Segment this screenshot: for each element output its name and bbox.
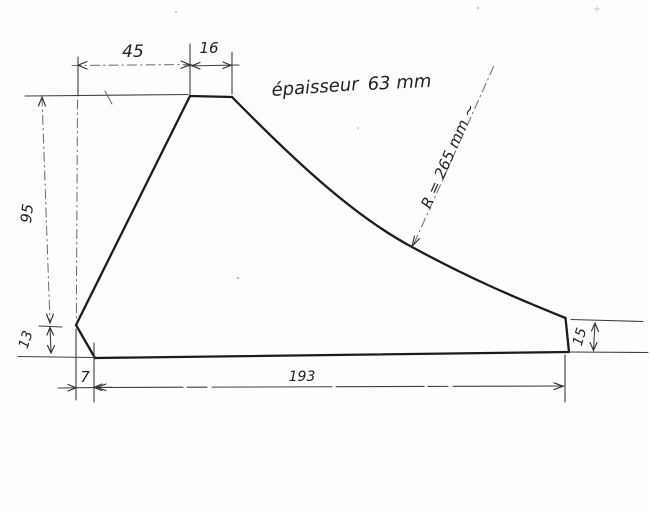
- thickness-note: épaisseur 63 mm: [271, 71, 432, 101]
- outline-right-edge: [566, 318, 570, 352]
- outline-bottom-edge: [95, 352, 569, 358]
- speck-dot: [477, 7, 479, 9]
- thickness-note-label: épaisseur: [271, 74, 361, 101]
- arrowhead-radius-leader: [412, 236, 420, 247]
- extension-lines: [18, 44, 648, 402]
- outline-left-slant-edge: [76, 96, 190, 325]
- technical-drawing-canvas: 45 16 95 13 7 193 15 R = 265 mm ~ épaiss…: [0, 0, 650, 510]
- scan-specks: [175, 6, 600, 279]
- ext-line-lower-left-level: [18, 357, 93, 358]
- dim-7-label: 7: [80, 368, 90, 386]
- dim-16-label: 16: [199, 39, 218, 57]
- dim-line-13: [50, 327, 51, 353]
- dim-15-label: 15: [570, 326, 590, 348]
- dim-13-label: 13: [16, 329, 37, 351]
- part-outline: [76, 96, 569, 358]
- speck-dot: [357, 127, 359, 129]
- outline-lower-left-edge: [76, 325, 95, 358]
- outline-top-plateau-edge: [190, 96, 232, 97]
- dim-95-label: 95: [17, 203, 37, 224]
- dimension-lines: [39, 61, 599, 391]
- ext-line-right-upper: [571, 320, 643, 322]
- scanned-sketch-sheet: 45 16 95 13 7 193 15 R = 265 mm ~ épaiss…: [0, 0, 650, 510]
- dim-line-45: [72, 65, 196, 66]
- speck-dot: [237, 277, 239, 279]
- ext-line-left-vertical: [76, 100, 77, 323]
- dim-line-95: [42, 97, 50, 323]
- dim-line-193: [95, 386, 565, 388]
- speck-cross: [594, 6, 600, 12]
- dim-45-label: 45: [122, 42, 144, 62]
- ext-line-right-lower: [569, 352, 648, 353]
- thickness-note-value: 63 mm: [367, 71, 432, 95]
- dim-193-label: 193: [289, 369, 316, 385]
- speck-dot: [175, 11, 177, 13]
- outline-concave-curve-edge: [232, 97, 566, 318]
- radius-label: R = 265 mm ~: [417, 101, 479, 211]
- stray-tick-mark: [105, 91, 112, 104]
